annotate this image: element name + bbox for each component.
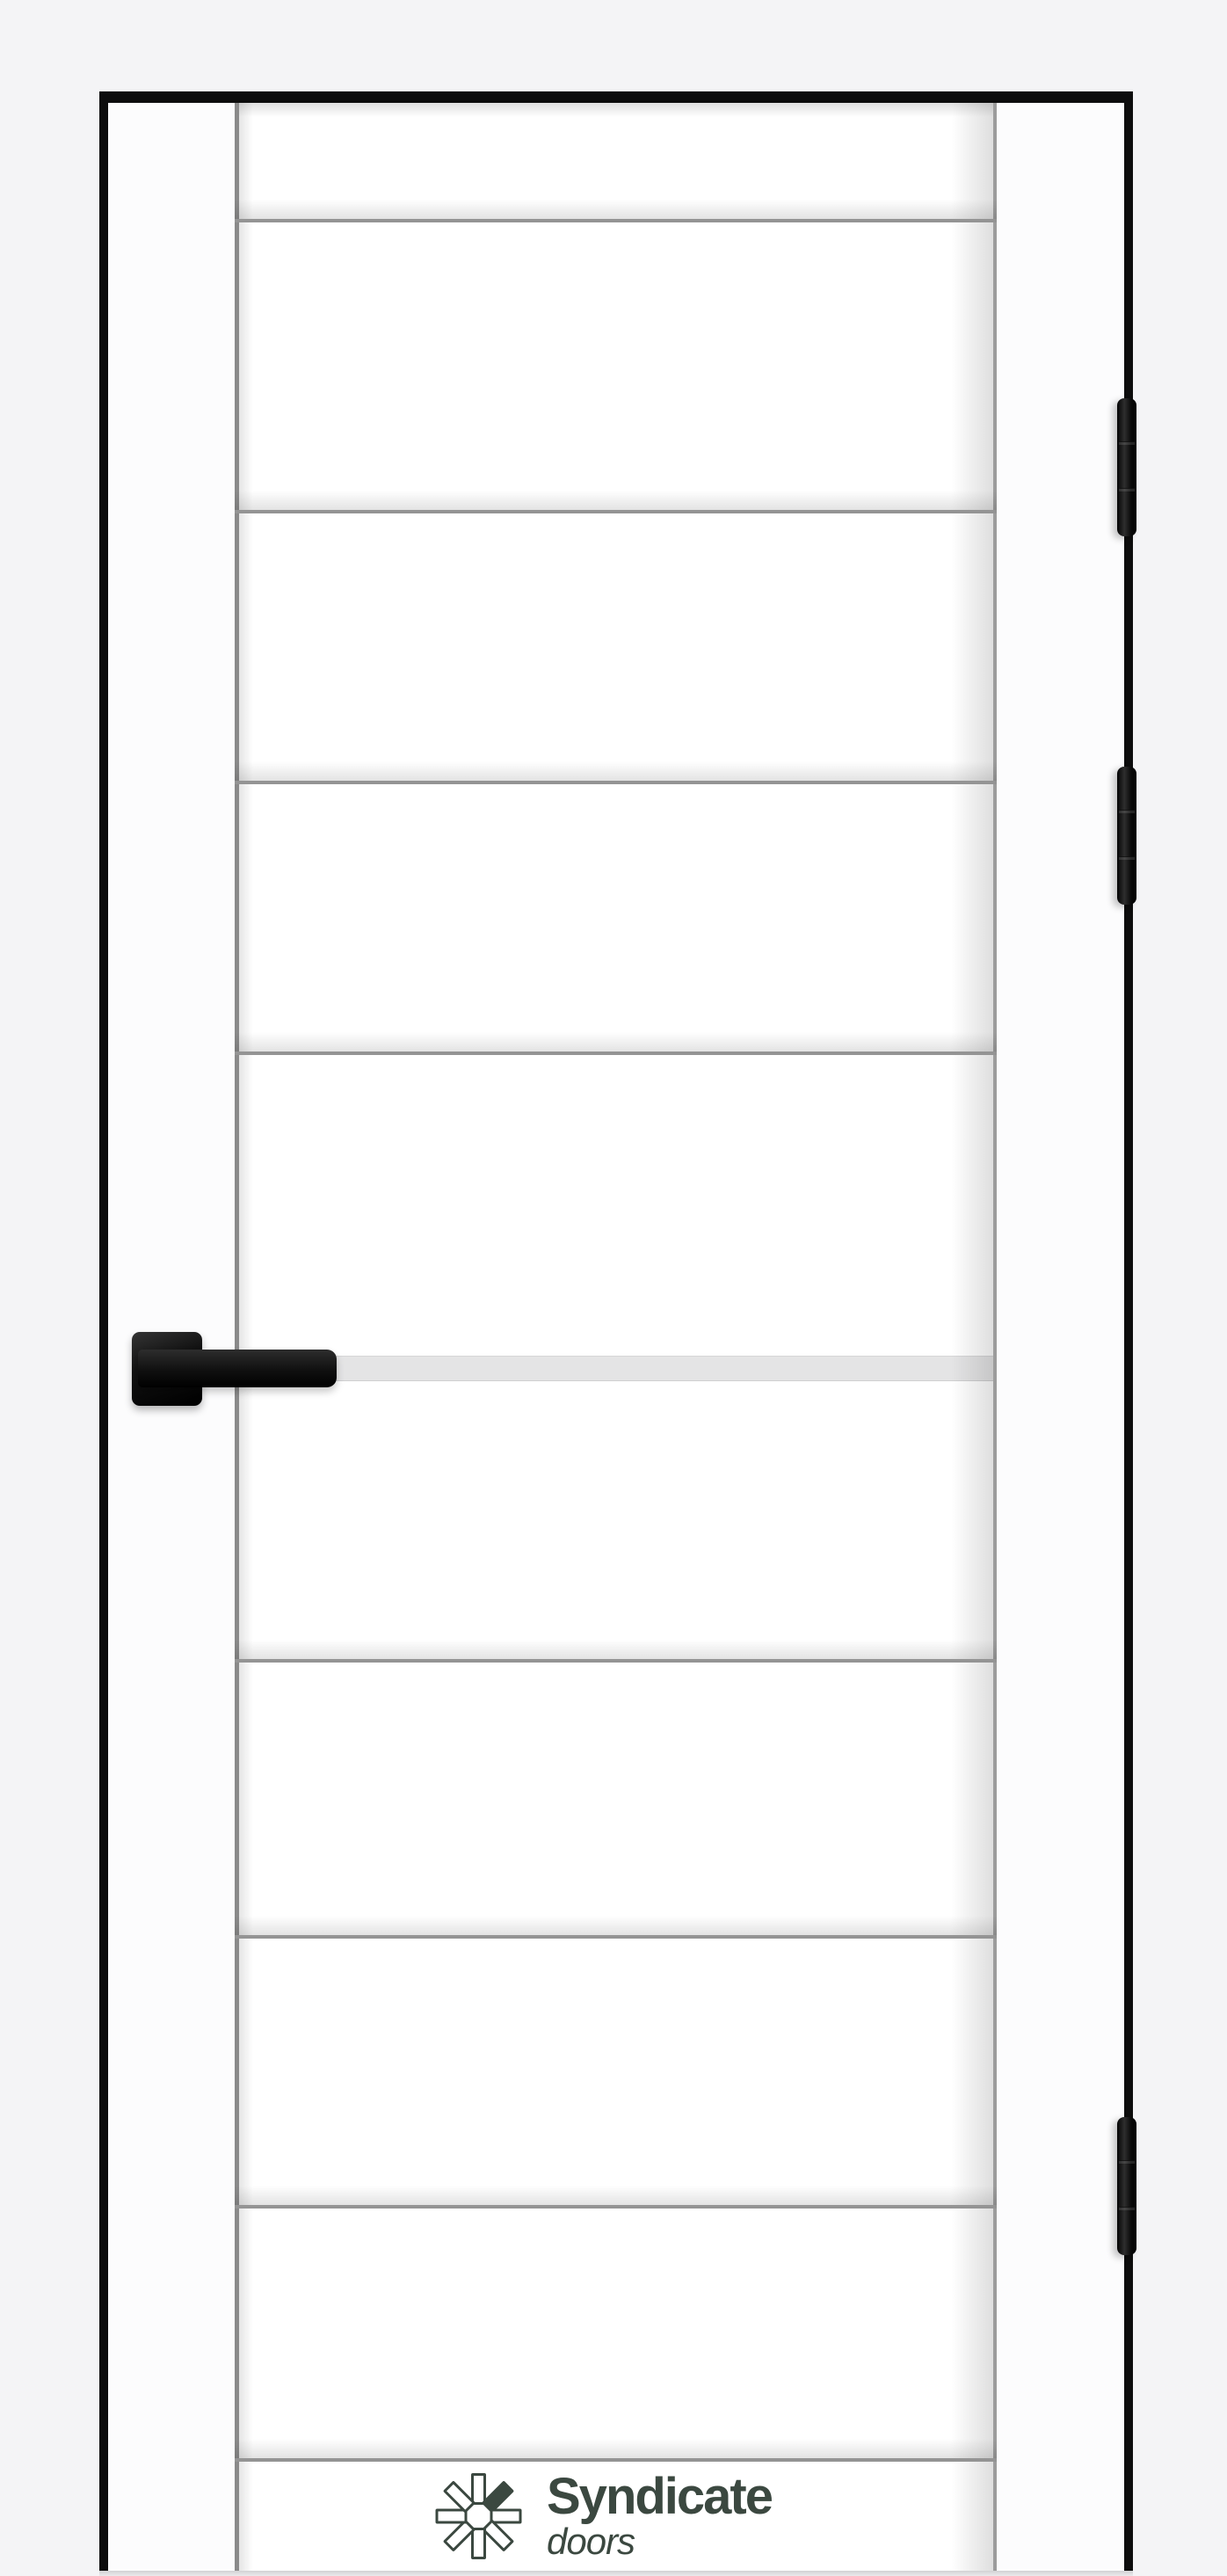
- door-groove: [235, 1916, 997, 1939]
- door-hinge-bottom: [1117, 2117, 1136, 2255]
- door-groove: [235, 2186, 997, 2209]
- door-groove: [235, 200, 997, 222]
- door-groove: [235, 761, 997, 784]
- product-image-door: Syndicate doors: [0, 0, 1227, 2576]
- glass-insert-strip: [235, 1356, 997, 1381]
- door-groove: [235, 1640, 997, 1663]
- leaf-top-shadow: [235, 103, 997, 117]
- door-hinge-middle: [1117, 767, 1136, 905]
- door-groove: [235, 2439, 997, 2462]
- brand-logo: Syndicate doors: [547, 2470, 772, 2560]
- door-hinge-top: [1117, 398, 1136, 536]
- floor-shadow: [99, 2571, 1133, 2576]
- brand-tagline: doors: [547, 2523, 772, 2560]
- door-frame: [99, 91, 1133, 2571]
- handle-lever: [138, 1350, 337, 1387]
- pinwheel-icon: [434, 2472, 522, 2560]
- door-leaf: [235, 103, 997, 2571]
- door-groove: [235, 1032, 997, 1055]
- brand-name: Syndicate: [547, 2470, 772, 2523]
- door-groove: [235, 491, 997, 513]
